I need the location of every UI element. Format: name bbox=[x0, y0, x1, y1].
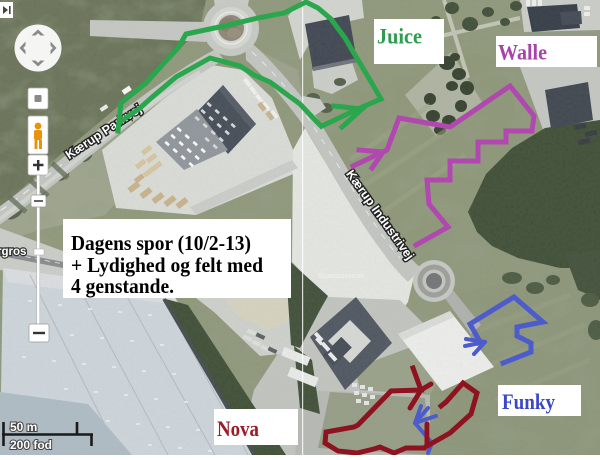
svg-text:rgros: rgros bbox=[0, 246, 26, 258]
svg-text:Juice: Juice bbox=[377, 24, 422, 49]
svg-text:Scansommer: Scansommer bbox=[318, 271, 365, 280]
svg-text:Nova: Nova bbox=[217, 416, 259, 441]
svg-text:4 genstande.: 4 genstande. bbox=[71, 274, 174, 298]
svg-text:Funky: Funky bbox=[502, 389, 555, 414]
svg-text:200 fod: 200 fod bbox=[10, 438, 52, 452]
svg-text:Dagens spor (10/2-13): Dagens spor (10/2-13) bbox=[71, 231, 251, 255]
svg-text:50 m: 50 m bbox=[10, 420, 37, 434]
svg-text:Walle: Walle bbox=[498, 40, 547, 65]
